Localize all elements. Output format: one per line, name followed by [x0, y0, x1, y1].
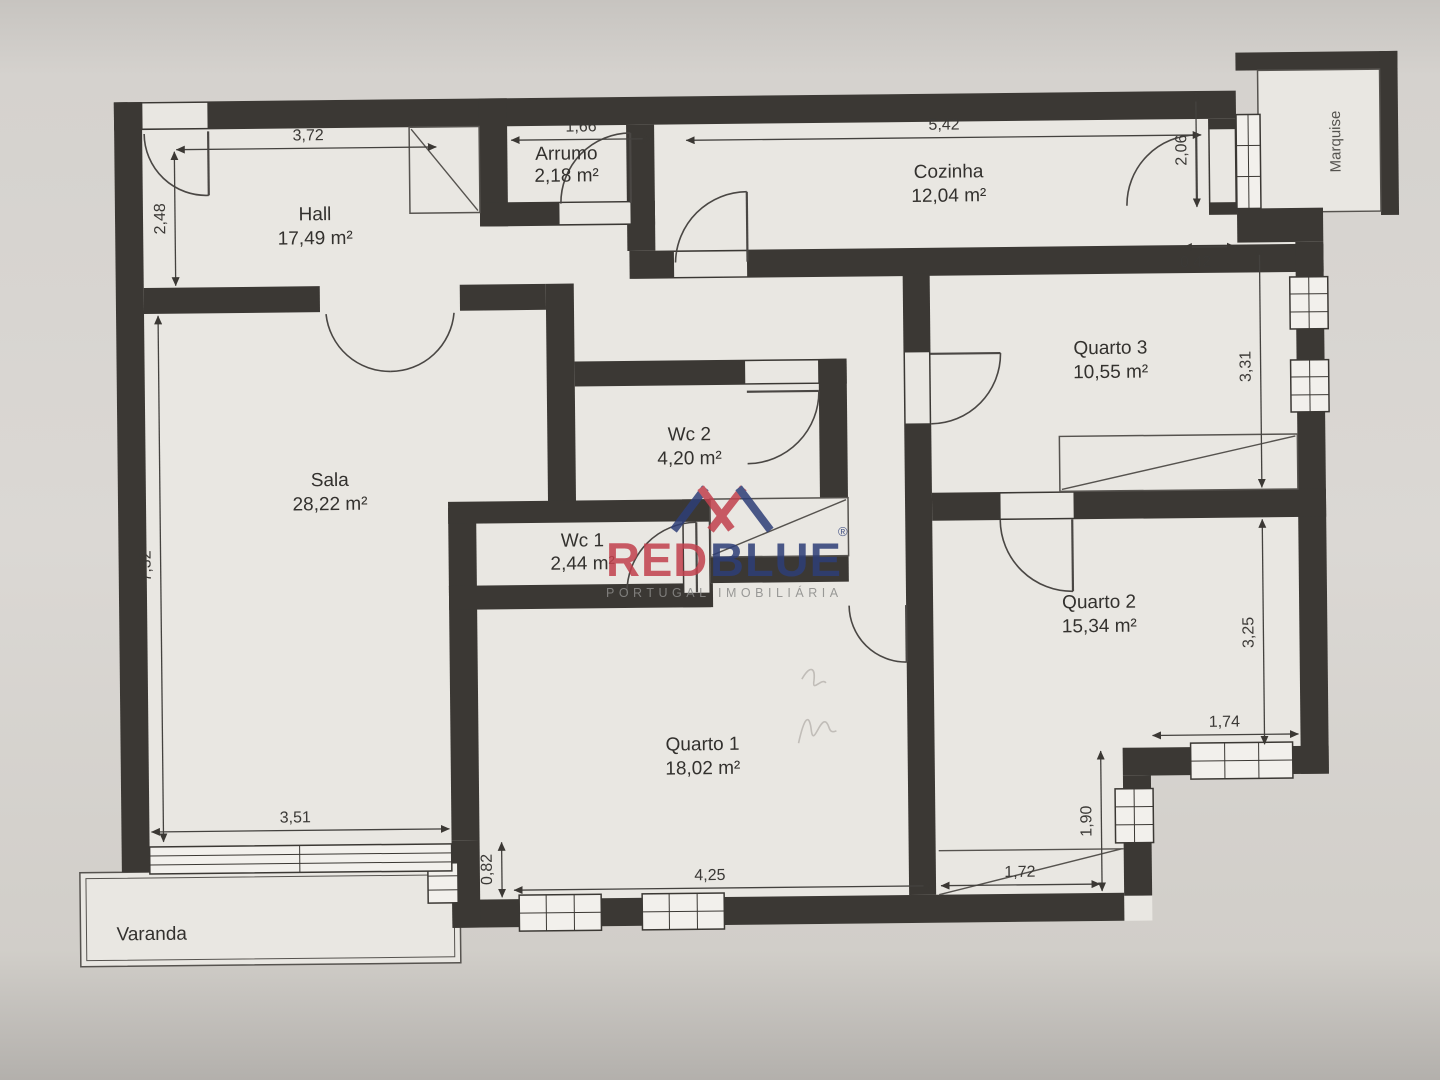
room-area-sala: 28,22 m² [292, 494, 367, 516]
dim-top-arrumo: 1,66 [565, 118, 596, 135]
watermark-registered-icon: ® [838, 524, 848, 539]
dim-q3-height: 3,31 [1237, 351, 1254, 382]
window-marquise [1236, 114, 1261, 208]
dim-q1-width: 4,25 [694, 867, 725, 884]
dim-left-entry: 2,48 [152, 203, 169, 234]
varanda-balcony [80, 869, 461, 967]
watermark-word-red: RED [606, 533, 708, 586]
room-label-quarto2: Quarto 2 [1062, 592, 1136, 614]
watermark-word-blue: BLUE [710, 533, 842, 586]
room-label-hall: Hall [299, 204, 332, 225]
dim-q1-closet-w: 1,72 [1004, 864, 1035, 881]
room-label-quarto3: Quarto 3 [1073, 338, 1147, 360]
window-quarto3-upper [1290, 277, 1329, 329]
dim-step-q3: 0,42 [1180, 254, 1211, 271]
room-label-cozinha: Cozinha [914, 161, 984, 183]
room-label-arrumo: Arrumo [535, 143, 598, 165]
room-label-marquise: Marquise [1327, 111, 1345, 173]
window-quarto2 [1191, 742, 1293, 779]
dim-top-cozinha: 5,42 [928, 116, 959, 133]
dim-top-hall: 3,72 [293, 127, 324, 144]
dim-q2-closet-h: 1,90 [1078, 805, 1095, 836]
dim-q2-window: 1,74 [1209, 714, 1240, 731]
window-sala-sliding [150, 844, 452, 874]
room-area-quarto3: 10,55 m² [1073, 362, 1148, 384]
floorplan-scan: 3,72 1,66 5,42 2,48 2,06 0,42 3,31 7,32 … [0, 0, 1440, 1080]
room-area-wc2: 4,20 m² [657, 448, 722, 470]
window-quarto1-left [519, 894, 601, 931]
room-label-varanda: Varanda [116, 924, 187, 946]
room-area-quarto1: 18,02 m² [665, 758, 740, 780]
window-quarto1-right [642, 893, 724, 930]
room-label-sala: Sala [311, 470, 350, 491]
window-quarto2-side [1115, 788, 1154, 842]
dim-q2-height: 3,25 [1240, 617, 1257, 648]
dim-q1-step: 0,82 [479, 854, 496, 885]
dim-sala-window: 3,51 [280, 809, 311, 826]
floorplan-svg: 3,72 1,66 5,42 2,48 2,06 0,42 3,31 7,32 … [0, 0, 1440, 1080]
window-quarto3-lower [1291, 360, 1330, 412]
watermark-tagline: PORTUGAL IMOBILIÁRIA [606, 585, 843, 600]
room-area-cozinha: 12,04 m² [911, 185, 986, 207]
room-area-quarto2: 15,34 m² [1062, 616, 1137, 638]
dim-sala-height: 7,32 [137, 550, 154, 581]
room-label-quarto1: Quarto 1 [665, 734, 739, 756]
room-label-wc2: Wc 2 [668, 424, 711, 445]
dim-marquise-door: 2,06 [1173, 134, 1190, 165]
room-label-wc1: Wc 1 [561, 530, 604, 551]
room-area-hall: 17,49 m² [278, 228, 353, 250]
room-area-arrumo: 2,18 m² [534, 165, 599, 187]
